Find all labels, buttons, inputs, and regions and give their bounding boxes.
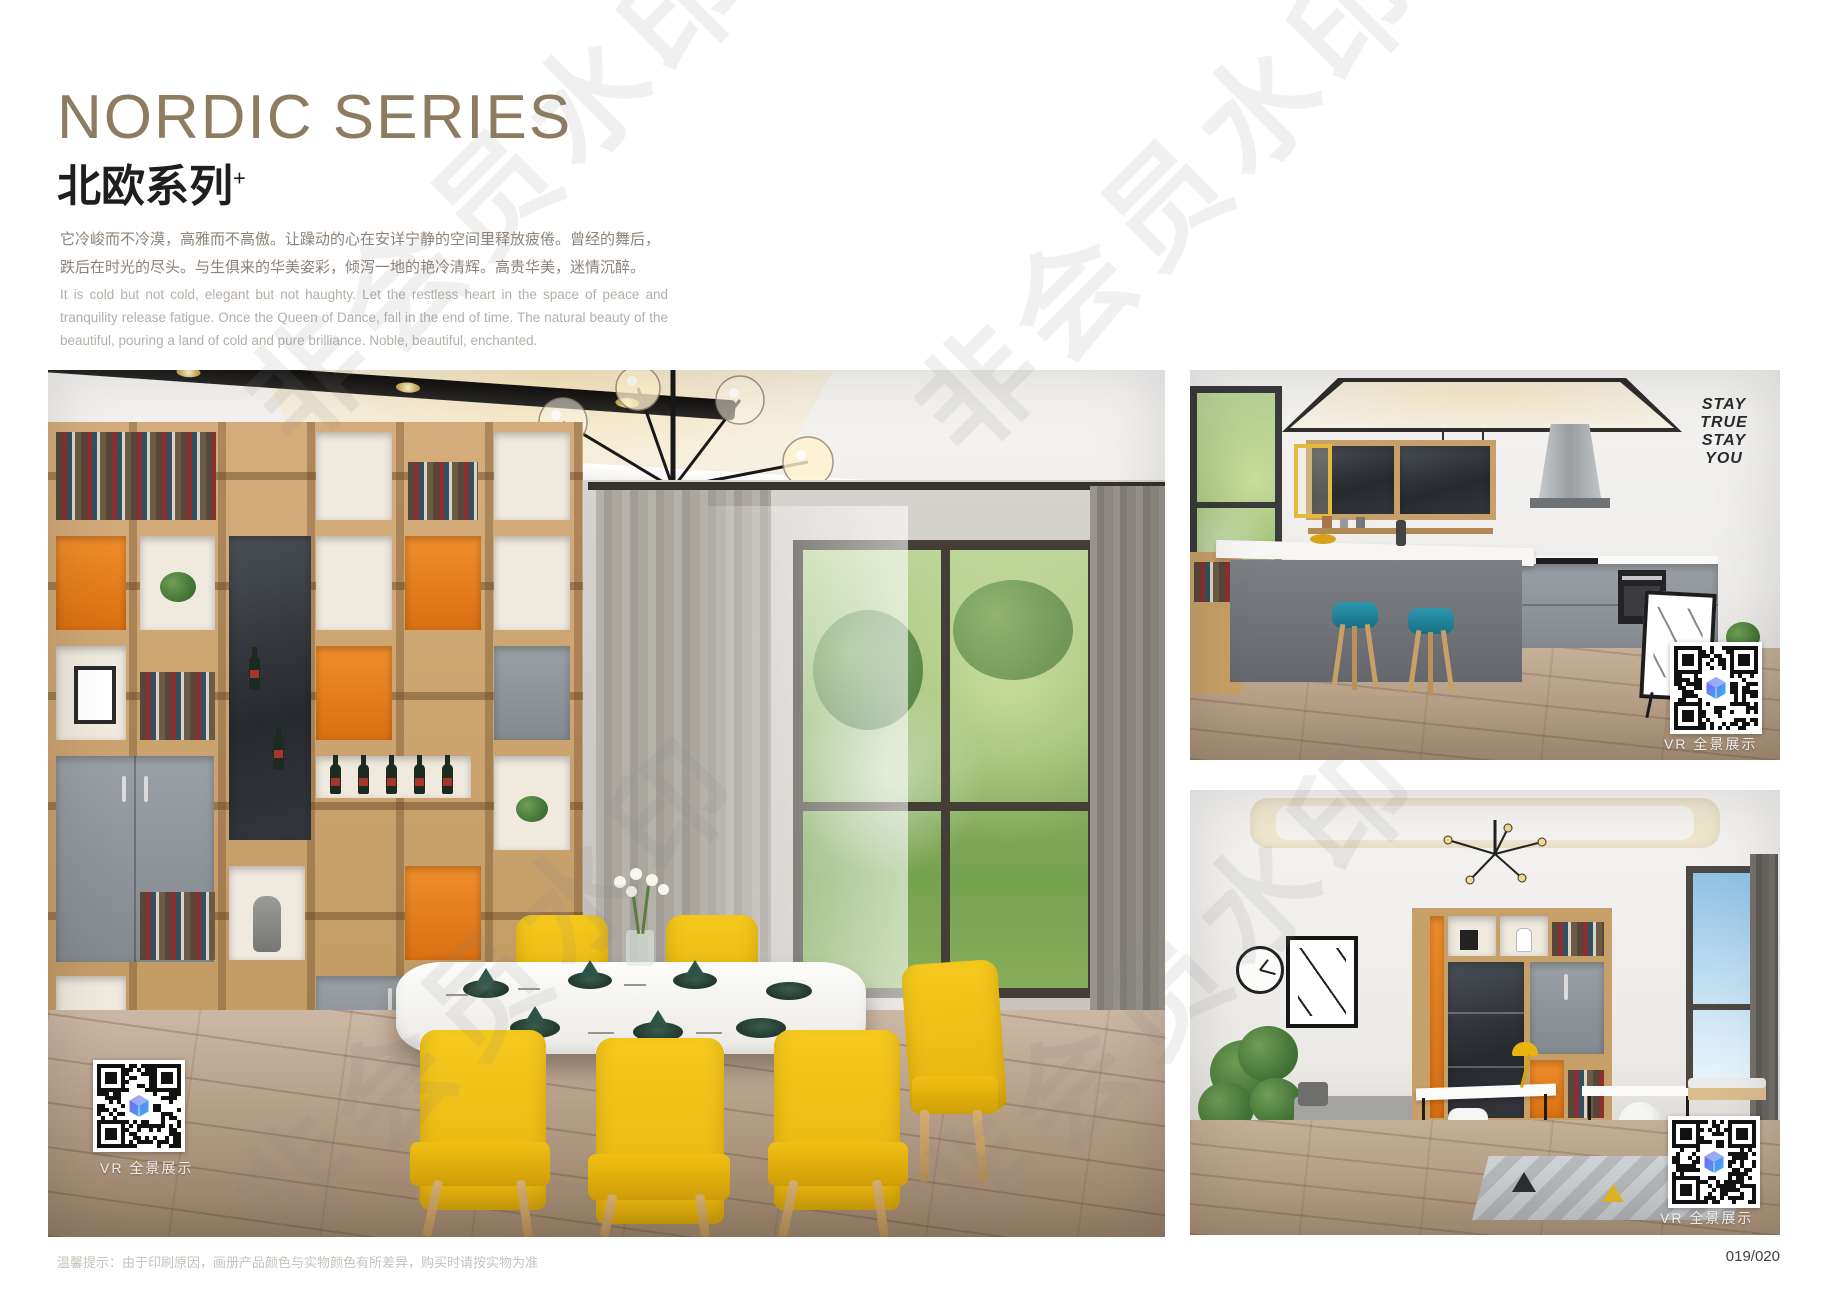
shelf-cell (56, 646, 126, 740)
chair-seat (768, 1142, 908, 1186)
napkin (685, 960, 705, 976)
decal-line: TRUE (1682, 414, 1766, 432)
curtain-right (1090, 486, 1165, 1034)
books-row (56, 432, 216, 520)
napkin (525, 1006, 545, 1022)
cutlery (624, 984, 646, 986)
chair-leg (920, 1110, 929, 1182)
cabinet-handle (144, 776, 148, 802)
subtitle-cn-text: 北欧系列 (57, 162, 233, 211)
bar-stool-teal (1408, 608, 1454, 700)
window-mullion (941, 550, 950, 988)
decal-line: YOU (1682, 450, 1766, 468)
chair-seat (912, 1076, 998, 1114)
shelf-cell (494, 756, 570, 850)
spotlight (396, 382, 421, 394)
ceramic-jar (253, 896, 281, 952)
shelf-cell (1448, 916, 1496, 956)
books-row (408, 462, 478, 520)
pillow (1298, 1082, 1328, 1106)
jar (1340, 518, 1348, 528)
wine-bottle (249, 656, 260, 690)
chair-seat (410, 1142, 550, 1186)
cabinet-handle (1564, 974, 1568, 1000)
bottle (1396, 520, 1406, 546)
wall-decal: STAY TRUE STAY YOU (1682, 396, 1766, 468)
stool-leg (1408, 630, 1422, 692)
stool-seat (1408, 608, 1454, 634)
photo-frame (74, 666, 116, 724)
wine-bottle (442, 764, 453, 794)
cutlery (518, 988, 540, 990)
stool-seat (1332, 602, 1378, 628)
print-disclaimer: 温馨提示：由于印刷原因，画册产品颜色与实物颜色有所差异，购买时请按实物为准 (57, 1252, 538, 1271)
page-title: NORDIC SERIES (57, 82, 572, 153)
jar (1322, 516, 1332, 528)
shelf-cell-orange (56, 536, 126, 630)
vase (1516, 928, 1532, 952)
glass-shelf-line (1448, 1066, 1524, 1068)
glass-shelf-line (1448, 1012, 1524, 1014)
page-subtitle: 北欧系列+ (57, 150, 246, 214)
plant (1238, 1026, 1298, 1082)
catalog-page: NORDIC SERIES 北欧系列+ 它冷峻而不冷漠，高雅而不高傲。让躁动的心… (0, 0, 1836, 1307)
shelf-cell (494, 432, 570, 520)
shelf-cell (140, 536, 215, 630)
white-tulip (630, 868, 642, 880)
window-seat-cushion (1688, 1078, 1766, 1088)
wine-bottle (273, 736, 284, 770)
shelf-cell-grey (494, 646, 570, 740)
shelf-cell (229, 866, 305, 960)
rug-triangle (1512, 1172, 1536, 1192)
bowl (1310, 534, 1336, 544)
wine-bottle (386, 764, 397, 794)
books-row (140, 672, 215, 740)
napkin (580, 960, 600, 976)
cabinet-handle (122, 776, 126, 802)
vr-qr-code (1670, 642, 1762, 734)
wine-bottle (414, 764, 425, 794)
window-mullion (1197, 502, 1275, 508)
black-box (1460, 930, 1478, 950)
flower-vase (626, 930, 654, 966)
shelf-cell (1500, 916, 1548, 956)
bar-stool-teal (1332, 602, 1378, 694)
oven-handle (1622, 576, 1662, 580)
ceiling-recess-light (1290, 382, 1674, 428)
decal-line: STAY (1682, 396, 1766, 414)
plant (160, 572, 196, 602)
clock-hand (1260, 969, 1276, 975)
stool-leg (1365, 624, 1379, 686)
shelf-cell (494, 536, 570, 630)
description-en: It is cold but not cold, elegant but not… (60, 284, 668, 353)
wall-clock (1236, 946, 1284, 994)
rug-triangle (1602, 1184, 1624, 1202)
yellow-open-shelf (1294, 444, 1332, 518)
decal-line: STAY (1682, 432, 1766, 450)
stool-leg (1428, 632, 1433, 696)
plant (516, 796, 548, 822)
white-tulip (658, 884, 669, 895)
books-row (1552, 922, 1604, 956)
stool-leg (1441, 630, 1455, 692)
shelf-cell-orange (316, 646, 392, 740)
shelf-cell-orange (405, 536, 481, 630)
shelf-cell-orange (405, 866, 481, 960)
stool-leg (1332, 624, 1346, 686)
vr-label: VR 全景展示 (1664, 734, 1757, 754)
napkin (648, 1010, 668, 1026)
stool-leg (1352, 626, 1357, 690)
page-number: 019/020 (1680, 1248, 1780, 1265)
sky-view (1693, 873, 1751, 1081)
sputnik-chandelier-small (1430, 820, 1560, 900)
art-print (1298, 948, 1346, 1016)
curtain-rod (588, 482, 1165, 490)
white-tulip (646, 874, 658, 886)
side-desk-top (1582, 1086, 1694, 1096)
shelf-cell (316, 432, 392, 520)
cutlery (588, 1032, 614, 1034)
plate (766, 982, 812, 1000)
window-mullion (1693, 1004, 1751, 1010)
white-tulip (614, 876, 626, 888)
shelf-cell (316, 536, 392, 630)
description-cn: 它冷峻而不冷漠，高雅而不高傲。让躁动的心在安详宁静的空间里释放疲倦。曾经的舞后，… (60, 226, 660, 282)
wine-bottle (330, 764, 341, 794)
main-photo-dining-room: VR 全景展示 (48, 370, 1165, 1237)
vr-qr-code (93, 1060, 185, 1152)
glass-cabinet-door (1400, 446, 1490, 514)
vr-qr-code (1668, 1116, 1760, 1208)
vr-label: VR 全景展示 (100, 1158, 193, 1178)
jar (1356, 517, 1365, 528)
napkin (476, 968, 496, 984)
glass-display-cabinet (229, 536, 311, 840)
grey-cabinet-door (1530, 962, 1604, 1054)
range-hood (1538, 424, 1602, 504)
framed-art (1286, 936, 1358, 1028)
subtitle-plus: + (233, 165, 246, 190)
vr-label: VR 全景展示 (1660, 1208, 1753, 1228)
wine-shelf (316, 756, 471, 798)
study-window-frame (1686, 866, 1758, 1088)
books-row (140, 892, 215, 960)
tree (953, 580, 1073, 680)
wine-bottle (358, 764, 369, 794)
white-tulip (626, 886, 637, 897)
upper-cabinets (1306, 440, 1496, 520)
range-hood-base (1530, 498, 1610, 508)
cutlery (696, 1032, 722, 1034)
cutlery (446, 994, 468, 996)
study-photo: VR 全景展示 (1190, 790, 1780, 1235)
kitchen-photo: STAY TRUE STAY YOU (1190, 370, 1780, 760)
cabinet-door-gap (134, 756, 136, 962)
spotlight (176, 370, 201, 378)
